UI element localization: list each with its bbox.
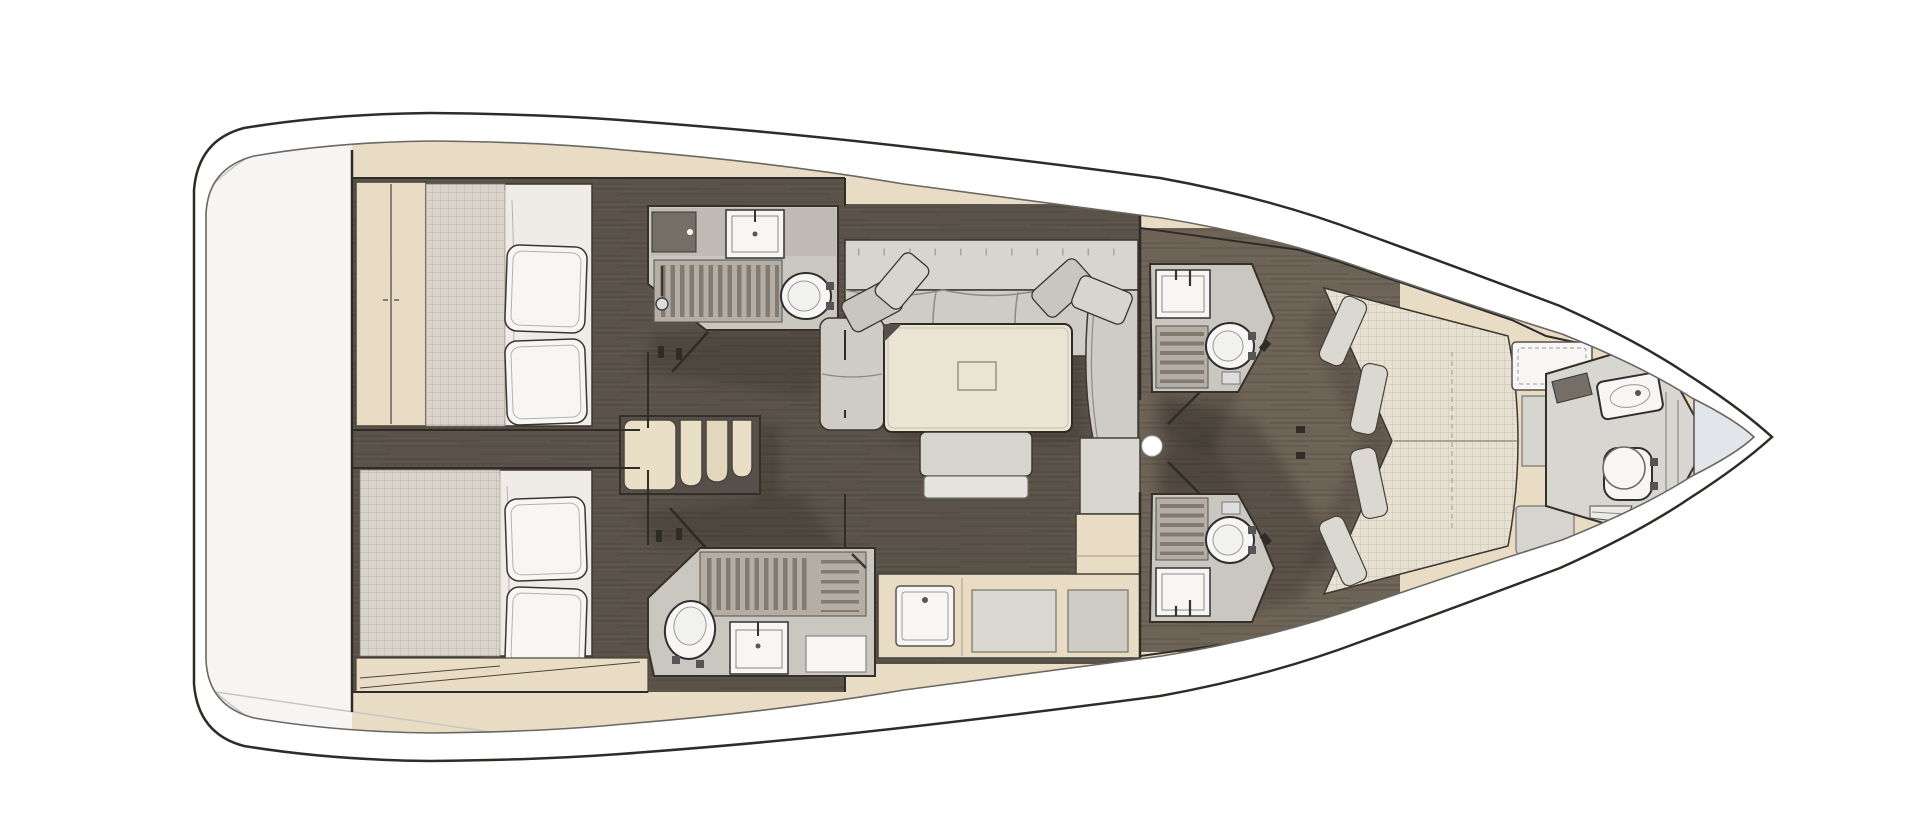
toilet-hinge [696,660,704,668]
galley-counter-vertical-top [1080,438,1140,514]
door-hardware [658,346,664,358]
toilet-hinge [1650,458,1658,466]
drain-dot [753,232,758,237]
door-handle-dot [1142,436,1162,456]
toilet-seat [1213,525,1243,555]
washbasin-drain [1635,390,1641,396]
corridor-latch [1296,452,1305,459]
pillow [505,497,588,582]
stair-tread [732,420,752,477]
mattress-grid [426,184,505,426]
toilet-hinge [826,282,834,290]
galley-faucet [922,597,928,603]
pillow [505,245,588,334]
shower-knob [656,298,668,310]
stair-tread [680,420,702,486]
toilet-bowl [1603,447,1645,489]
toilet-seat [1213,331,1243,361]
toilet-hinge [1248,332,1256,340]
galley-worktop [972,590,1056,652]
door-hardware [676,348,682,360]
stair-tread [706,420,728,482]
door-hardware [656,530,662,542]
door-hardware [676,528,682,540]
bench-front [924,476,1028,498]
toilet-hinge [1248,526,1256,534]
cabinet-knob [687,229,693,235]
bench [920,432,1032,476]
galley-sink [896,586,954,646]
toilet-base [1222,372,1240,384]
toilet-hinge [1248,352,1256,360]
pillow [505,339,588,426]
drain-dot [756,644,761,649]
yacht-floor-plan [0,0,1920,821]
toilet-hinge [672,656,680,664]
mattress-grid [360,470,500,656]
toilet-hinge [1650,482,1658,490]
sink [1156,270,1210,318]
toilet-base [1222,502,1240,514]
corridor-latch [1296,426,1305,433]
shelf [806,636,866,672]
dining-table [884,324,1072,432]
aft-cabin-port [356,182,592,426]
toilet-hinge [1248,546,1256,554]
chaise-seat [820,318,884,430]
toilet-seat [788,281,820,311]
toilet-hinge [826,302,834,310]
sink [1156,568,1210,616]
floor-plan-stage [0,0,1920,821]
companionway-stairs [620,416,760,494]
galley-appliance [1068,590,1128,652]
